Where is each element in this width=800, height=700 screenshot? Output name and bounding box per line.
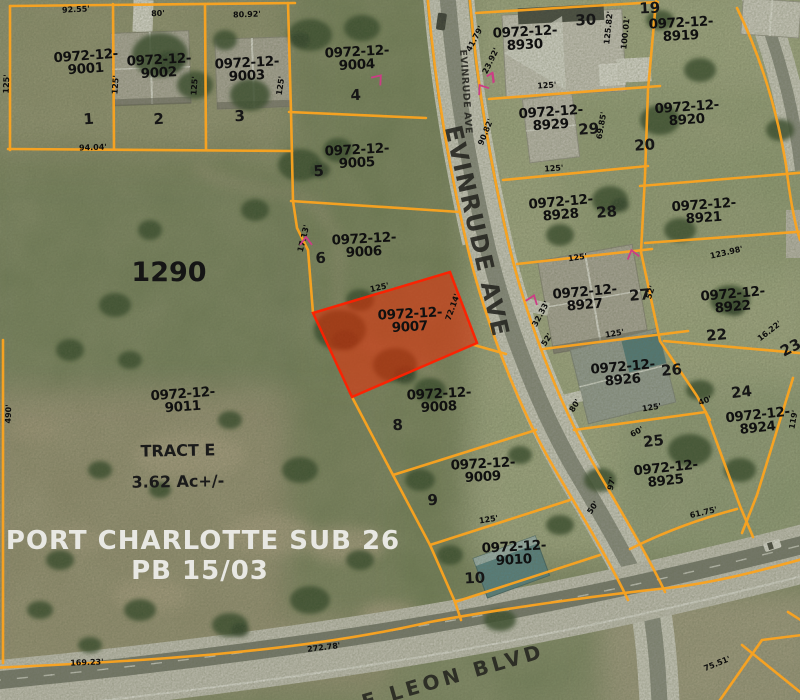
lot-number: 3 (234, 107, 245, 126)
lot-number: 28 (595, 202, 617, 222)
parcel-id-label: 8930 (506, 36, 543, 54)
lot-number: 20 (634, 135, 656, 154)
lot-number: 9 (427, 491, 438, 510)
parcel-id-label: 8921 (685, 209, 722, 227)
dimension-label: 490' (4, 404, 14, 423)
lot-number: 26 (660, 360, 682, 380)
dimension-label: 92.55' (62, 4, 90, 14)
parcel-id-label: 9011 (164, 398, 201, 416)
lot-number: 5 (313, 162, 324, 181)
parcel-id-label: 8927 (566, 295, 603, 314)
parcel-id-label: 9006 (345, 243, 382, 261)
parcel-id-label: 9010 (495, 551, 532, 569)
lot-number: 6 (315, 249, 326, 268)
parcel-id-label: 9002 (140, 64, 177, 82)
dimension-label: 80' (151, 9, 165, 18)
lot-number: 2 (153, 110, 164, 129)
dimension-label: 125' (110, 75, 120, 95)
parcel-id-label: 8928 (542, 205, 579, 224)
dimension-label: 80.92' (233, 10, 261, 20)
map-annotation: TRACT E (140, 440, 215, 460)
lot-number: 22 (705, 325, 727, 345)
parcel-id-label: 9001 (67, 60, 104, 78)
dimension-label: 169.23' (70, 657, 104, 667)
plat-map-viewport: 0972-12-900110972-12-900220972-12-900330… (0, 0, 800, 700)
lot-number: 30 (575, 10, 597, 29)
dimension-label: 125' (537, 80, 557, 90)
parcel-id-label: 9009 (464, 468, 501, 486)
lot-number: 8 (392, 416, 403, 435)
parcel-id-label: 8926 (604, 370, 641, 389)
parcel-id-label: 9007 (391, 318, 428, 336)
dimension-label: 94.04' (79, 143, 107, 153)
parcel-id-label: 9003 (228, 67, 265, 85)
parcel-id-label: 8929 (532, 116, 569, 134)
dimension-label: 125' (2, 74, 12, 93)
lot-number: 25 (642, 431, 665, 451)
parcel-id-label: 8920 (668, 111, 705, 129)
parcel-id-label: 8919 (662, 27, 699, 45)
map-annotation: PORT CHARLOTTE SUB 26 (6, 526, 400, 556)
map-annotation: PB 15/03 (131, 556, 269, 586)
lot-number: 19 (639, 0, 661, 18)
parcel-id-label: 9004 (338, 56, 375, 74)
parcel-id-label: 8922 (714, 297, 751, 316)
lot-number: 1 (83, 110, 95, 129)
parcel-id-label: 9005 (338, 154, 375, 172)
aerial-plat-map: 0972-12-900110972-12-900220972-12-900330… (0, 0, 800, 700)
map-annotation: 1290 (131, 257, 206, 288)
dimension-label: 125' (189, 76, 199, 96)
parcel-id-label: 9008 (420, 398, 457, 416)
lot-number: 24 (730, 382, 753, 402)
dimension-label: 125' (544, 163, 564, 173)
map-annotation: 3.62 Ac+/- (131, 471, 224, 492)
lot-number: 4 (350, 86, 361, 105)
lot-number: 10 (464, 568, 486, 587)
